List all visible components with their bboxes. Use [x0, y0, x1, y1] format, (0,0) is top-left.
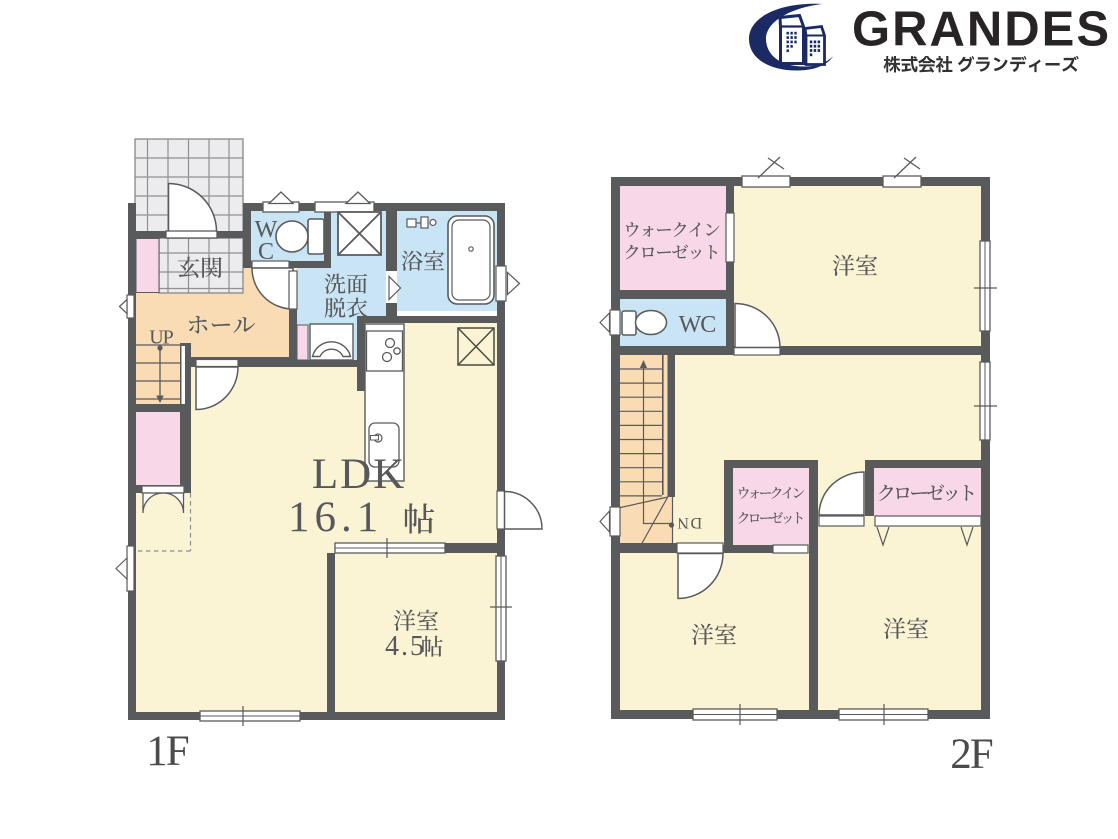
svg-text:1F: 1F	[146, 728, 189, 775]
svg-text:16.1: 16.1	[288, 494, 383, 541]
svg-text:2F: 2F	[950, 731, 993, 778]
svg-text:WC: WC	[679, 312, 716, 338]
svg-text:LDK: LDK	[312, 451, 406, 498]
svg-text:4.5: 4.5	[385, 631, 426, 662]
svg-text:UP: UP	[149, 327, 173, 349]
svg-text:DN: DN	[676, 514, 702, 531]
svg-text:GRANDES: GRANDES	[852, 3, 1111, 57]
